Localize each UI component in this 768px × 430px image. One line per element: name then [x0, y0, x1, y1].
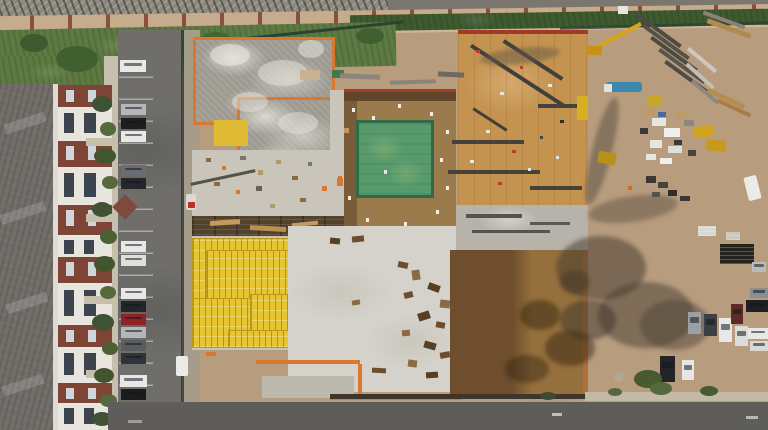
aerial-construction-site-photo [0, 0, 768, 430]
road-marking [552, 413, 562, 416]
road-marking [128, 420, 142, 423]
road-marking [746, 416, 758, 419]
